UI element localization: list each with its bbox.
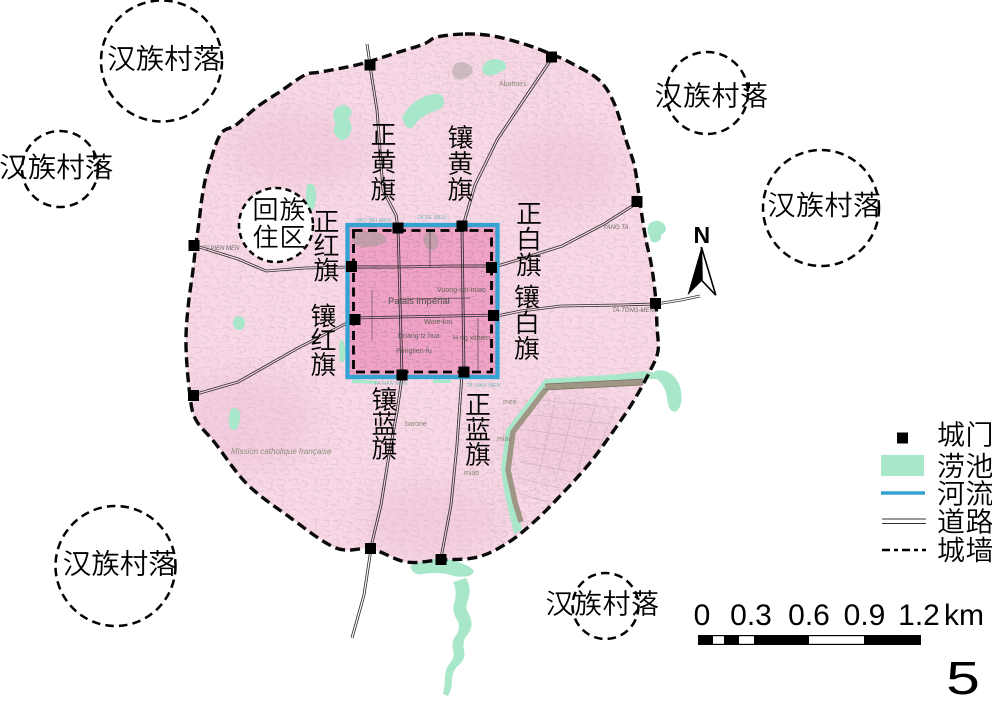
svg-text:TA-TONG-MEN: TA-TONG-MEN <box>612 308 654 314</box>
svg-text:Mission catholique française: Mission catholique française <box>231 447 332 456</box>
svg-text:Abattoirs: Abattoirs <box>499 81 527 88</box>
svg-text:SI PIEN MEN: SI PIEN MEN <box>203 246 240 252</box>
svg-text:mee: mee <box>503 399 517 406</box>
svg-text:0.3: 0.3 <box>730 599 772 632</box>
svg-text:TAO SEI MEN: TAO SEI MEN <box>356 218 391 224</box>
svg-text:1.2: 1.2 <box>898 599 940 632</box>
svg-text:0.9: 0.9 <box>844 599 886 632</box>
svg-text:miao: miao <box>497 436 512 443</box>
svg-text:Palais impérial: Palais impérial <box>388 296 450 307</box>
svg-text:Wore-koi: Wore-koi <box>424 319 452 326</box>
svg-text:TA WAN MEN: TA WAN MEN <box>466 383 500 389</box>
svg-text:0: 0 <box>694 599 711 632</box>
svg-text:km: km <box>944 599 984 632</box>
svg-text:5: 5 <box>946 653 980 704</box>
svg-text:TA SE MEN: TA SE MEN <box>417 215 446 221</box>
svg-text:miao: miao <box>464 470 479 477</box>
svg-text:H ng xithien: H ng xithien <box>453 335 490 342</box>
svg-text:N: N <box>694 222 711 248</box>
svg-text:0.6: 0.6 <box>788 599 830 632</box>
svg-text:barone: barone <box>405 421 427 428</box>
svg-text:YANG TA: YANG TA <box>603 225 629 231</box>
svg-text:Doang tz hua: Doang tz hua <box>398 333 440 340</box>
svg-text:Pongtien-fu: Pongtien-fu <box>396 348 432 355</box>
svg-text:TA HAN MEN: TA HAN MEN <box>374 381 407 387</box>
